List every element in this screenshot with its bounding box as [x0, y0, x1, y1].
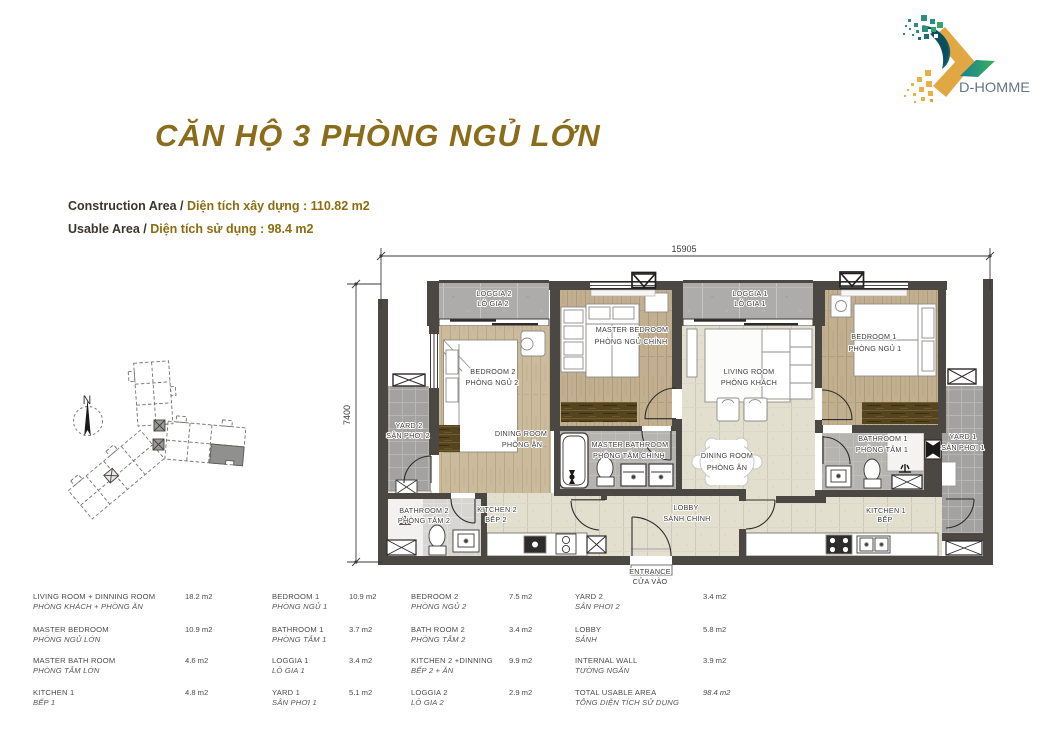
svg-text:PHÒNG TẮM 1: PHÒNG TẮM 1: [272, 635, 327, 644]
svg-text:BATHROOM 1: BATHROOM 1: [858, 434, 908, 443]
svg-text:LÔ GIA 1: LÔ GIA 1: [734, 299, 766, 308]
svg-text:ENTRANCE: ENTRANCE: [629, 567, 671, 576]
svg-text:CĂN HỘ 3 PHÒNG NGỦ LỚN: CĂN HỘ 3 PHÒNG NGỦ LỚN: [155, 117, 601, 153]
svg-text:4.6 m2: 4.6 m2: [185, 656, 208, 665]
svg-text:PHÒNG NGỦ LỚN: PHÒNG NGỦ LỚN: [33, 635, 101, 644]
svg-text:BẾP 2: BẾP 2: [485, 514, 507, 524]
svg-text:18.2 m2: 18.2 m2: [185, 592, 212, 601]
svg-text:15905: 15905: [671, 244, 696, 254]
svg-text:SẢNH CHÍNH: SẢNH CHÍNH: [663, 514, 710, 523]
svg-text:3.4 m2: 3.4 m2: [349, 656, 372, 665]
svg-text:SÂN PHƠI 2: SÂN PHƠI 2: [575, 602, 620, 611]
svg-text:7.5 m2: 7.5 m2: [509, 592, 532, 601]
svg-text:LOGGIA 1: LOGGIA 1: [272, 656, 309, 665]
svg-text:PHÒNG TẮM 1: PHÒNG TẮM 1: [856, 445, 908, 454]
svg-text:MASTER BATH ROOM: MASTER BATH ROOM: [33, 656, 115, 665]
svg-text:D-HOMME: D-HOMME: [959, 79, 1030, 95]
svg-text:PHÒNG KHÁCH + PHÒNG ĂN: PHÒNG KHÁCH + PHÒNG ĂN: [33, 602, 143, 611]
svg-text:LOGGIA 2: LOGGIA 2: [476, 289, 511, 298]
svg-text:SÂN PHƠI 1: SÂN PHƠI 1: [941, 443, 984, 452]
svg-text:3.7 m2: 3.7 m2: [349, 625, 372, 634]
svg-text:98.4 m2: 98.4 m2: [703, 688, 731, 697]
svg-text:PHÒNG NGỦ CHÍNH: PHÒNG NGỦ CHÍNH: [595, 337, 668, 346]
svg-text:BEDROOM 1: BEDROOM 1: [272, 592, 319, 601]
svg-text:PHÒNG TẮM 2: PHÒNG TẮM 2: [398, 516, 450, 525]
svg-text:MASTER BATHROOM: MASTER BATHROOM: [592, 440, 669, 449]
svg-text:3.4 m2: 3.4 m2: [703, 592, 726, 601]
svg-text:LOGGIA 1: LOGGIA 1: [732, 289, 767, 298]
svg-text:PHÒNG ĂN: PHÒNG ĂN: [707, 463, 747, 472]
svg-text:PHÒNG ĂN: PHÒNG ĂN: [502, 440, 542, 449]
svg-text:PHÒNG NGỦ 2: PHÒNG NGỦ 2: [411, 602, 467, 611]
svg-text:3.4 m2: 3.4 m2: [509, 625, 532, 634]
svg-text:LÔ GIA 2: LÔ GIA 2: [477, 299, 509, 308]
svg-text:SÂN PHƠI 2: SÂN PHƠI 2: [386, 431, 429, 440]
svg-text:LIVING ROOM + DINNING ROOM: LIVING ROOM + DINNING ROOM: [33, 592, 155, 601]
svg-text:LÔ GIA 1: LÔ GIA 1: [272, 666, 305, 675]
svg-text:BATHROOM 1: BATHROOM 1: [272, 625, 324, 634]
svg-text:YARD 1: YARD 1: [950, 432, 977, 441]
svg-text:TỔNG DIỆN TÍCH SỬ DỤNG: TỔNG DIỆN TÍCH SỬ DỤNG: [575, 698, 679, 707]
svg-text:3.9 m2: 3.9 m2: [703, 656, 726, 665]
svg-text:BẾP 1: BẾP 1: [33, 698, 55, 707]
svg-text:YARD 1: YARD 1: [272, 688, 300, 697]
svg-text:10.9 m2: 10.9 m2: [185, 625, 212, 634]
svg-text:INTERNAL WALL: INTERNAL WALL: [575, 656, 637, 665]
svg-text:KITCHEN 2 +DINNING: KITCHEN 2 +DINNING: [411, 656, 493, 665]
svg-text:LIVING ROOM: LIVING ROOM: [724, 367, 775, 376]
svg-text:BATH ROOM 2: BATH ROOM 2: [411, 625, 465, 634]
svg-text:BEDROOM 1: BEDROOM 1: [851, 332, 896, 341]
svg-text:KITCHEN 2: KITCHEN 2: [477, 505, 517, 514]
svg-text:YARD 2: YARD 2: [575, 592, 603, 601]
svg-text:SẢNH: SẢNH: [575, 635, 597, 644]
svg-text:BEDROOM 2: BEDROOM 2: [411, 592, 458, 601]
svg-text:CỬA VÀO: CỬA VÀO: [633, 577, 668, 586]
svg-text:PHÒNG TẮM LỚN: PHÒNG TẮM LỚN: [33, 666, 100, 675]
svg-text:PHÒNG NGỦ 1: PHÒNG NGỦ 1: [272, 602, 327, 611]
svg-text:PHÒNG NGỦ 2: PHÒNG NGỦ 2: [465, 378, 518, 387]
svg-text:KITCHEN 1: KITCHEN 1: [866, 506, 906, 515]
svg-text:5.8 m2: 5.8 m2: [703, 625, 726, 634]
svg-text:10.9 m2: 10.9 m2: [349, 592, 376, 601]
svg-text:TOTAL USABLE AREA: TOTAL USABLE AREA: [575, 688, 657, 697]
svg-text:SÂN PHƠI 1: SÂN PHƠI 1: [272, 698, 317, 707]
svg-text:KITCHEN 1: KITCHEN 1: [33, 688, 74, 697]
svg-text:LÔ GIA 2: LÔ GIA 2: [411, 698, 445, 707]
svg-text:PHÒNG TẮM CHÍNH: PHÒNG TẮM CHÍNH: [593, 451, 665, 460]
svg-text:LOBBY: LOBBY: [575, 625, 601, 634]
svg-text:PHÒNG KHÁCH: PHÒNG KHÁCH: [721, 378, 777, 387]
svg-text:DINING ROOM: DINING ROOM: [701, 451, 753, 460]
svg-text:5.1 m2: 5.1 m2: [349, 688, 372, 697]
svg-text:Construction Area / Diện tích: Construction Area / Diện tích xây dựng :…: [68, 199, 370, 213]
svg-text:N: N: [83, 393, 92, 407]
svg-text:9.9 m2: 9.9 m2: [509, 656, 532, 665]
svg-text:MASTER BEDROOM: MASTER BEDROOM: [596, 325, 669, 334]
svg-text:MASTER BEDROOM: MASTER BEDROOM: [33, 625, 109, 634]
svg-text:Usable Area / Diện tích sử dụn: Usable Area / Diện tích sử dụng : 98.4 m…: [68, 222, 314, 236]
svg-text:4.8 m2: 4.8 m2: [185, 688, 208, 697]
svg-text:7400: 7400: [342, 405, 352, 425]
svg-text:BẾP 2 + ĂN: BẾP 2 + ĂN: [411, 666, 454, 675]
svg-text:BEDROOM 2: BEDROOM 2: [470, 367, 515, 376]
svg-text:YARD 2: YARD 2: [396, 421, 423, 430]
svg-text:BATHROOM 2: BATHROOM 2: [399, 506, 449, 515]
svg-text:DINING ROOM: DINING ROOM: [495, 429, 547, 438]
svg-text:LOGGIA 2: LOGGIA 2: [411, 688, 448, 697]
svg-text:BẾP: BẾP: [877, 514, 892, 524]
svg-text:PHÒNG TẮM 2: PHÒNG TẮM 2: [411, 635, 466, 644]
svg-text:PHÒNG NGỦ 1: PHÒNG NGỦ 1: [848, 344, 901, 353]
svg-text:2.9 m2: 2.9 m2: [509, 688, 532, 697]
svg-text:TƯỜNG NGĂN: TƯỜNG NGĂN: [575, 666, 630, 675]
svg-text:LOBBY: LOBBY: [673, 503, 698, 512]
